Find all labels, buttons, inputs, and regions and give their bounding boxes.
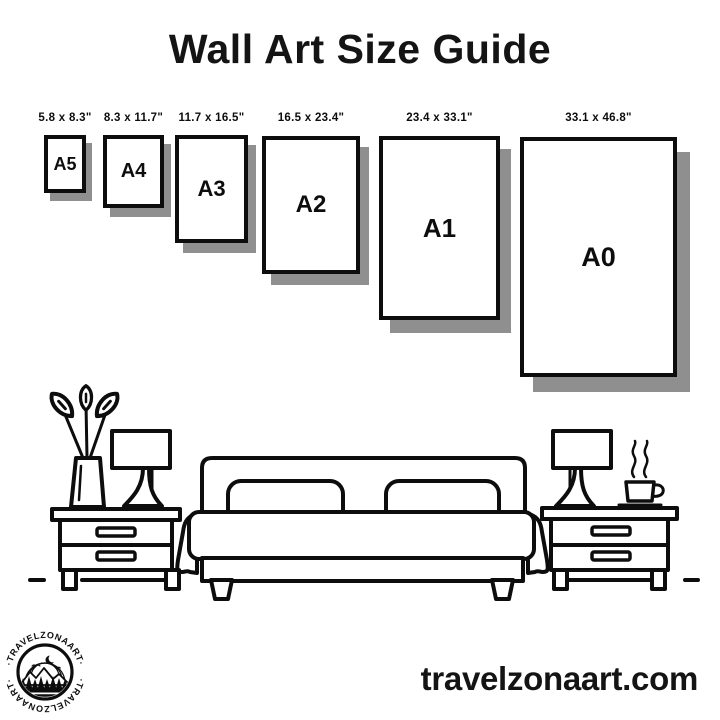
nightstand-left-icon (52, 509, 180, 589)
size-frame-a5: A5 (44, 135, 86, 193)
table-lamp-right-icon (553, 431, 611, 506)
size-frame-a4: A4 (103, 135, 164, 208)
website-url: travelzonaart.com (421, 660, 698, 698)
bed-base (202, 558, 523, 581)
frame-dimensions-a2: 16.5 x 23.4" (278, 112, 345, 124)
steam (632, 441, 635, 477)
lamp-base (556, 468, 594, 506)
bed-icon (177, 458, 548, 599)
lamp-shade (553, 431, 611, 468)
nightstand-right-icon (542, 508, 677, 589)
travelzonaart-logo: ·TRAVELZONAART· ·TRAVELZONAART· (2, 627, 88, 715)
table-lamp-left-icon (112, 431, 170, 506)
vase (71, 458, 104, 507)
drawer-handle (97, 552, 135, 560)
drawer-handle (97, 528, 135, 536)
steam (644, 441, 647, 477)
frame-dimensions-a0: 33.1 x 46.8" (565, 112, 632, 124)
size-frame-a1: A1 (379, 136, 500, 320)
drawer-handle (592, 527, 630, 535)
mattress (189, 512, 534, 559)
bed-foot-left (211, 580, 232, 599)
frame-dimensions-a5: 5.8 x 8.3" (38, 112, 91, 124)
frame-dimensions-a1: 23.4 x 33.1" (406, 112, 473, 124)
bedroom-illustration (0, 382, 720, 607)
frame-dimensions-a4: 8.3 x 11.7" (104, 112, 163, 124)
page-title: Wall Art Size Guide (0, 26, 720, 73)
lamp-shade (112, 431, 170, 468)
frame-dimensions-a3: 11.7 x 16.5" (179, 112, 245, 124)
size-frame-a0: A0 (520, 137, 677, 377)
size-frame-a3: A3 (175, 135, 248, 243)
coffee-cup-icon (619, 441, 663, 505)
poster-canvas: Wall Art Size Guide 5.8 x 8.3"A58.3 x 11… (0, 0, 720, 720)
cup-body (626, 482, 654, 501)
lamp-base (124, 468, 162, 506)
bed-foot-right (492, 580, 513, 599)
drawer-handle (592, 552, 630, 560)
size-frame-a2: A2 (262, 136, 360, 274)
